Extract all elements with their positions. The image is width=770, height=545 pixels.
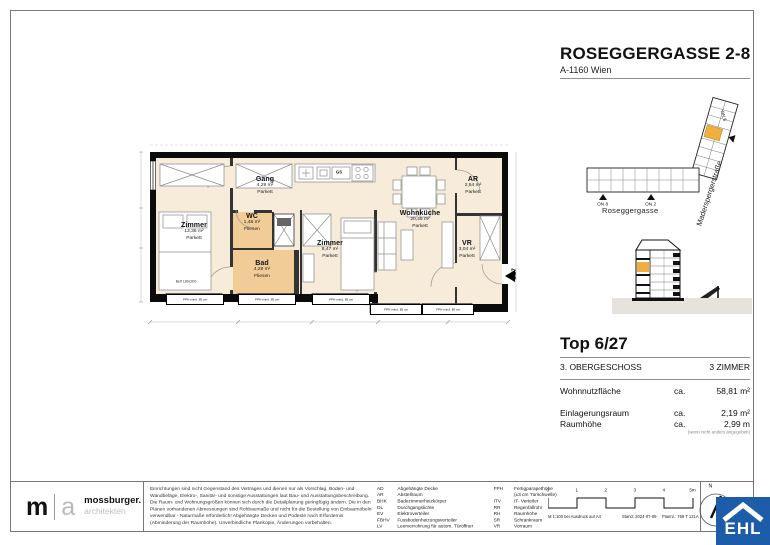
metric-value: 58,81 m²: [698, 386, 750, 396]
room-area: 13,36 m²: [169, 229, 219, 233]
unit-floor-row: 3. OBERGESCHOSS 3 ZIMMER: [560, 362, 750, 372]
site-marker-icon: [647, 194, 655, 200]
room-area: 2,54 m²: [454, 183, 492, 187]
abbreviation-legend: ADAbgehängte Decke ARAbstellraum BHKBade…: [377, 486, 557, 530]
room-area: 4,29 m²: [242, 183, 288, 187]
window-parapet-chip: FPH mind. 85 cm: [238, 294, 296, 305]
metric-label: Einlagerungsraum: [560, 408, 674, 418]
room-label-gang: Gang 4,29 m² Parkett: [232, 176, 298, 196]
footer-separator: [10, 481, 753, 482]
metric-label: Wohnnutzfläche: [560, 386, 674, 396]
site-marker-icon: [599, 194, 607, 200]
window-parapet-text: FPH mind. 85 cm: [183, 298, 207, 301]
frame-left: [10, 10, 11, 532]
disclaimer-text: Einrichtungen sind nicht Gegenstand des …: [150, 486, 373, 526]
room-finish: Parkett: [393, 224, 446, 228]
frame-top: [10, 10, 753, 11]
room-area: 3,04 m²: [451, 247, 483, 251]
bed-size-label: Bett 180x200: [172, 280, 200, 283]
legend-desc: Leerverrohrung für autom. Türöffner: [397, 524, 473, 530]
project-title: ROSEGGERGASSE 2-8: [560, 44, 750, 64]
scale-tick: 4: [663, 488, 666, 493]
legend-column-1: ADAbgehängte Decke ARAbstellraum BHKBade…: [377, 486, 473, 530]
window-parapet-chip: FPH mind. 85 cm: [166, 294, 224, 305]
legend-desc: Vorraum: [514, 524, 532, 530]
window-parapet-chip: FPH mind. 85 cm: [370, 304, 422, 315]
room-area: 1,48 m²: [239, 220, 264, 224]
room-area: 4,28 m²: [244, 267, 280, 271]
room-label-wohnkueche: Wohnküche 20,45 m² Parkett: [382, 210, 458, 230]
room-label-wc: WC 1,48 m² Fliesen: [234, 213, 270, 233]
metric-ca: ca.: [674, 408, 698, 418]
building-section-drawing: [612, 236, 752, 324]
room-finish: Fliesen: [244, 274, 280, 278]
architect-logo-m: m: [26, 495, 48, 520]
unit-rule-2: [560, 379, 750, 380]
project-address: A-1160 Wien: [560, 65, 611, 75]
architect-name-text: mossburger.: [84, 495, 141, 506]
metric-value: 2,19 m²: [698, 408, 750, 418]
room-area: 20,45 m²: [393, 217, 446, 221]
room-label-zimmer-2: Zimmer 8,47 m² Parkett: [298, 240, 362, 260]
scale-tick: 5m: [689, 488, 695, 493]
scale-tick: 2: [605, 488, 608, 493]
metric-row: Einlagerungsraum ca. 2,19 m²: [560, 408, 750, 418]
room-finish: Parkett: [454, 190, 492, 194]
scale-tick: 0: [547, 488, 550, 493]
unit-rule-1: [560, 357, 750, 358]
scale-tick: 3: [634, 488, 637, 493]
metric-ca: ca.: [674, 386, 698, 396]
window-parapet-text: FPH mind. 85 cm: [329, 298, 353, 301]
metric-row: Wohnnutzfläche ca. 58,81 m²: [560, 386, 750, 396]
street-label-roseggergasse: Roseggergasse: [602, 206, 658, 215]
metric-value: 2,99 m: [698, 419, 750, 429]
plan-document-page: Zimmer 13,36 m² Parkett Gang 4,29 m² Par…: [0, 0, 770, 545]
scale-tick: 1: [576, 488, 579, 493]
architect-tagline: architekten: [84, 506, 126, 516]
window-parapet-text: FPH mind. 85 cm: [436, 308, 460, 311]
section-unit-highlight: [637, 262, 649, 272]
architect-logo-divider: [54, 494, 55, 520]
metric-row: Raumhöhe ca. 2,99 m: [560, 419, 750, 429]
unit-room-count: 3 ZIMMER: [709, 362, 750, 372]
room-area: 8,47 m²: [308, 247, 353, 251]
unit-floor: 3. OBERGESCHOSS: [560, 362, 642, 372]
print-plan-number: Plannr.: 769 T 121A: [662, 515, 699, 519]
legend-abbr: LV: [377, 524, 397, 530]
room-finish: Parkett: [169, 236, 219, 240]
frame-right: [753, 10, 754, 532]
room-finish: Parkett: [242, 190, 288, 194]
entry-unit-label: 6/27: [512, 268, 518, 280]
room-label-vr: VR 3,04 m² Parkett: [444, 240, 490, 260]
print-date: Stand: 2024-07-09: [622, 515, 656, 519]
window-parapet-text: FPH mind. 85 cm: [384, 308, 408, 311]
metric-note: (wenn nicht anders angegeben): [621, 430, 750, 435]
window-parapet-chip: FPH mind. 85 cm: [422, 304, 474, 315]
room-finish: Parkett: [451, 254, 483, 258]
legend-abbr: VR: [494, 524, 514, 530]
room-finish: Fliesen: [239, 227, 264, 231]
architect-logo: m a mossburger. architekten: [26, 494, 141, 520]
header-rule: [560, 78, 750, 79]
scale-bar: [548, 497, 695, 510]
ehl-logo: EHL: [716, 497, 770, 545]
frame-bottom: [10, 531, 753, 532]
metric-ca: ca.: [674, 419, 698, 429]
metric-label: Raumhöhe: [560, 419, 674, 429]
room-finish: Parkett: [308, 254, 353, 258]
window-parapet-chip: FPH mind. 85 cm: [312, 294, 370, 305]
north-label: N: [708, 484, 712, 490]
window-parapet-text: FPH mind. 85 cm: [255, 298, 279, 301]
room-label-zimmer-1: Zimmer 13,36 m² Parkett: [158, 222, 230, 242]
print-scale-note: M 1:100 bei Ausdruck auf A4: [548, 515, 601, 519]
unit-top-number: Top 6/27: [560, 334, 628, 354]
architect-logo-a: a: [61, 495, 75, 520]
ehl-logo-text: EHL: [725, 520, 762, 537]
dishwasher-label: GS: [333, 171, 346, 175]
room-label-bad: Bad 4,28 m² Fliesen: [236, 260, 288, 280]
footer-cell-divider-1: [143, 481, 144, 531]
architect-name: mossburger. architekten: [84, 496, 141, 518]
room-label-ar: AR 2,54 m² Parkett: [446, 176, 500, 196]
site-plan-drawing: [585, 96, 753, 208]
